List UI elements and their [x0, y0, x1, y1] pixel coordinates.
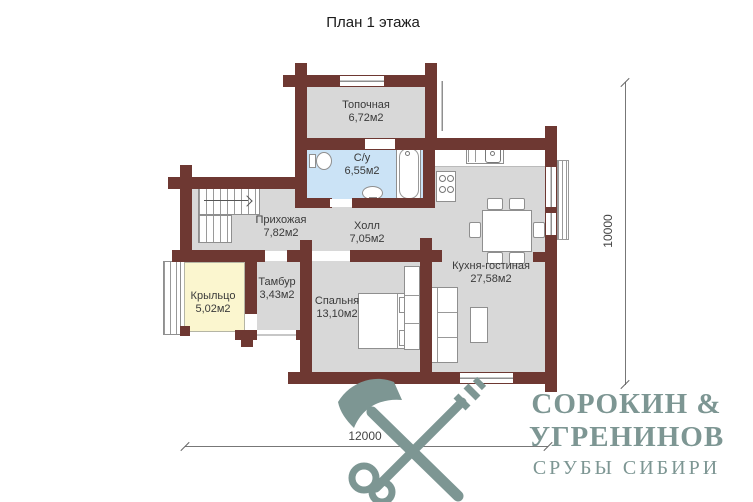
- room-label-tambur: Тамбур 3,43м2: [258, 276, 295, 302]
- room-name: Топочная: [342, 99, 390, 111]
- window-sill: [557, 160, 569, 240]
- toilet-icon: [309, 154, 316, 168]
- wall-segment: [545, 126, 557, 384]
- wall-segment: [295, 138, 557, 150]
- porch-steps-icon: [163, 261, 181, 335]
- room-area: 3,43м2: [259, 289, 294, 301]
- burner-icon: [447, 175, 454, 182]
- window: [546, 167, 556, 207]
- burner-icon: [439, 186, 446, 193]
- room-name: Крыльцо: [191, 290, 236, 302]
- sofa-cushion-line: [437, 337, 457, 338]
- wall-segment: [295, 75, 307, 208]
- room-label-bedroom: Спальня 13,10м2: [315, 295, 359, 321]
- logo-text-block: СОРОКИН & УГРЕНИНОВ СРУБЫ СИБИРИ: [500, 388, 753, 482]
- room-name: Тамбур: [258, 276, 295, 288]
- room-label-prihozhaya: Прихожая 7,82м2: [256, 214, 307, 240]
- room-name: Холл: [354, 220, 380, 232]
- room-name: Спальня: [315, 295, 359, 307]
- dining-table-icon: [482, 210, 532, 252]
- wardrobe-shelf-line: [405, 323, 419, 324]
- logo-line-1: СОРОКИН &: [500, 388, 753, 421]
- room-name: С/у: [354, 152, 371, 164]
- wardrobe-icon: [404, 266, 420, 350]
- chair-icon: [469, 222, 481, 238]
- room-name: Кухня-гостиная: [452, 260, 530, 272]
- window: [340, 76, 384, 86]
- wall-segment: [295, 63, 307, 75]
- dimension-value-vertical: 10000: [601, 203, 615, 259]
- door-opening: [246, 314, 256, 330]
- entrance-door: [257, 331, 296, 339]
- wall-segment: [300, 240, 312, 384]
- room-area: 6,55м2: [344, 165, 379, 177]
- bathtub-inner: [399, 148, 419, 199]
- room-label-topochnaya: Топочная 6,72м2: [342, 99, 390, 125]
- room-area: 13,10м2: [316, 308, 357, 320]
- window: [546, 213, 556, 235]
- bed-icon: [358, 293, 410, 349]
- floor-plan-page: { "title": "План 1 этажа", "rooms": [ {"…: [0, 0, 753, 502]
- wall-segment: [241, 340, 253, 347]
- coffee-table-icon: [470, 307, 488, 343]
- room-label-porch: Крыльцо 5,02м2: [191, 290, 236, 316]
- wall-segment: [420, 238, 432, 384]
- chair-icon: [509, 198, 525, 210]
- stairs-icon: [198, 215, 232, 243]
- door-opening: [330, 199, 352, 207]
- bathtub-icon: [396, 144, 421, 202]
- door-opening: [312, 251, 350, 261]
- chair-icon: [533, 222, 545, 238]
- room-label-holl: Холл 7,05м2: [349, 220, 384, 246]
- wall-segment: [296, 330, 312, 340]
- wall-segment: [352, 198, 425, 208]
- sofa-back-line: [437, 288, 438, 362]
- porch-post: [180, 326, 190, 336]
- door-opening: [365, 139, 395, 149]
- room-area: 27,58м2: [470, 273, 511, 285]
- stove-icon: [436, 171, 456, 202]
- room-label-bathroom: С/у 6,55м2: [344, 152, 379, 178]
- sofa-cushion-line: [437, 312, 457, 313]
- wall-segment: [307, 198, 332, 208]
- room-area: 7,05м2: [349, 233, 384, 245]
- burner-icon: [439, 175, 446, 182]
- page-title: План 1 этажа: [273, 14, 473, 31]
- room-name: Прихожая: [256, 214, 307, 226]
- dimension-line-vertical: [625, 82, 626, 385]
- room-label-kitchen-living: Кухня-гостиная 27,58м2: [452, 260, 530, 286]
- wall-segment: [180, 165, 192, 262]
- wardrobe-shelf-line: [405, 295, 419, 296]
- bed-head-line: [397, 294, 398, 348]
- sofa-icon: [430, 287, 458, 363]
- axe-and-key-logo-icon: [332, 376, 502, 502]
- wall-segment: [425, 63, 437, 150]
- room-area: 5,02м2: [195, 303, 230, 315]
- wall-segment: [235, 330, 257, 340]
- toilet-icon: [316, 152, 332, 170]
- bathtub-drain-icon: [405, 151, 410, 156]
- room-area: 7,82м2: [263, 227, 298, 239]
- logo-line-2: УГРЕНИНОВ: [500, 421, 753, 454]
- burner-icon: [447, 186, 454, 193]
- room-area: 6,72м2: [348, 112, 383, 124]
- wall-segment: [533, 252, 545, 262]
- logo-line-3: СРУБЫ СИБИРИ: [500, 454, 753, 482]
- wall-segment: [172, 250, 265, 262]
- chair-icon: [487, 198, 503, 210]
- faucet-icon: [490, 151, 495, 156]
- window: [437, 81, 447, 131]
- door-opening: [265, 251, 287, 261]
- wall-segment: [245, 262, 257, 314]
